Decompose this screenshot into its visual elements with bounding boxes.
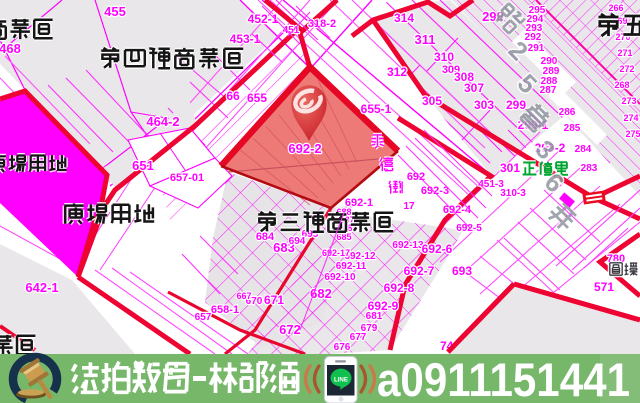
svg-text:286: 286 — [559, 107, 576, 118]
svg-text:681: 681 — [366, 311, 383, 322]
svg-text:275: 275 — [625, 129, 640, 139]
svg-text:LINE: LINE — [334, 377, 348, 384]
svg-text:274: 274 — [623, 113, 638, 123]
svg-text:311: 311 — [415, 32, 436, 47]
svg-text:a0911151441: a0911151441 — [377, 353, 630, 403]
svg-text:677: 677 — [350, 332, 367, 343]
svg-text:692-13: 692-13 — [392, 240, 424, 251]
svg-text:285: 285 — [564, 123, 581, 134]
svg-text:692-17: 692-17 — [322, 248, 350, 258]
svg-text:655-1: 655-1 — [361, 102, 392, 116]
svg-text:655: 655 — [247, 91, 267, 105]
svg-text:464-2: 464-2 — [146, 114, 179, 129]
svg-text:307: 307 — [464, 81, 484, 95]
svg-text:284: 284 — [575, 144, 592, 155]
svg-text:694: 694 — [289, 236, 306, 247]
svg-text:692-4: 692-4 — [443, 204, 472, 216]
svg-text:303: 303 — [474, 98, 494, 112]
svg-text:266: 266 — [608, 3, 623, 13]
svg-text:301: 301 — [500, 161, 520, 175]
svg-text:452-1: 452-1 — [248, 12, 279, 26]
svg-text:287: 287 — [540, 85, 557, 96]
svg-text:651: 651 — [132, 158, 154, 173]
svg-text:17: 17 — [403, 201, 415, 212]
svg-text:657: 657 — [195, 312, 212, 323]
svg-text:642-1: 642-1 — [25, 280, 58, 295]
svg-text:692-6: 692-6 — [422, 242, 453, 256]
svg-text:272: 272 — [619, 64, 634, 74]
svg-text:692-2: 692-2 — [288, 141, 321, 156]
svg-text:314: 314 — [394, 11, 414, 25]
svg-text:692-8: 692-8 — [384, 281, 415, 295]
svg-text:271: 271 — [617, 48, 632, 58]
svg-text:283: 283 — [581, 163, 598, 174]
svg-text:318-2: 318-2 — [308, 18, 336, 30]
svg-text:676: 676 — [334, 342, 351, 353]
svg-text:667: 667 — [236, 291, 251, 301]
svg-text:66: 66 — [226, 89, 240, 103]
svg-text:692-5: 692-5 — [456, 223, 482, 234]
svg-text:310: 310 — [434, 50, 454, 64]
svg-text:658-1: 658-1 — [211, 304, 239, 316]
svg-text:571: 571 — [594, 280, 614, 294]
svg-text:312: 312 — [387, 65, 407, 79]
svg-text:468: 468 — [0, 41, 21, 56]
svg-text:268: 268 — [614, 80, 629, 90]
svg-text:671: 671 — [264, 293, 284, 307]
svg-text:692-3: 692-3 — [421, 185, 449, 197]
svg-text:273: 273 — [621, 96, 636, 106]
svg-text:693: 693 — [452, 264, 472, 278]
svg-text:299: 299 — [506, 98, 526, 112]
svg-text:692-1: 692-1 — [345, 197, 373, 209]
svg-text:692-10: 692-10 — [324, 272, 356, 283]
svg-text:453-1: 453-1 — [230, 32, 261, 46]
svg-text:692-11: 692-11 — [336, 261, 367, 272]
svg-text:657-01: 657-01 — [170, 172, 204, 184]
svg-text:310-3: 310-3 — [500, 188, 526, 199]
svg-text:455: 455 — [104, 4, 126, 19]
svg-text:305: 305 — [422, 94, 442, 108]
svg-text:672: 672 — [279, 322, 301, 337]
svg-text:692-7: 692-7 — [404, 264, 435, 278]
